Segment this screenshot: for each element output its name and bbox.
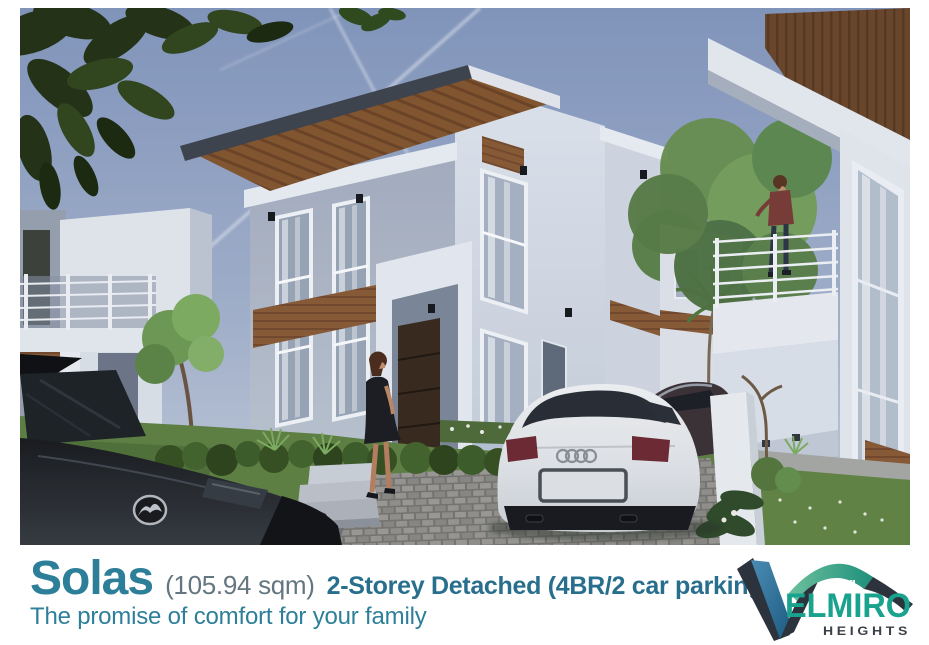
listing-title: Solas [30,551,153,606]
dusk-tint [20,8,910,545]
listing-area: (105.94 sqm) [165,570,315,601]
logo-window-icon [843,580,855,585]
velmiro-logo: ELMIRO HEIGHTS [727,552,923,644]
logo-wordmark: ELMIRO [785,587,911,625]
brand-logo: ELMIRO HEIGHTS [727,552,923,644]
listing-tagline: The promise of comfort for your family [30,603,427,631]
flyer-page: Solas (105.94 sqm) 2-Storey Detached (4B… [0,0,929,645]
logo-subtitle: HEIGHTS [823,626,911,638]
render-scene [20,8,910,545]
caption-row: Solas (105.94 sqm) 2-Storey Detached (4B… [30,551,771,606]
render-image [20,8,910,545]
listing-spec: 2-Storey Detached (4BR/2 car parking) [327,572,772,601]
